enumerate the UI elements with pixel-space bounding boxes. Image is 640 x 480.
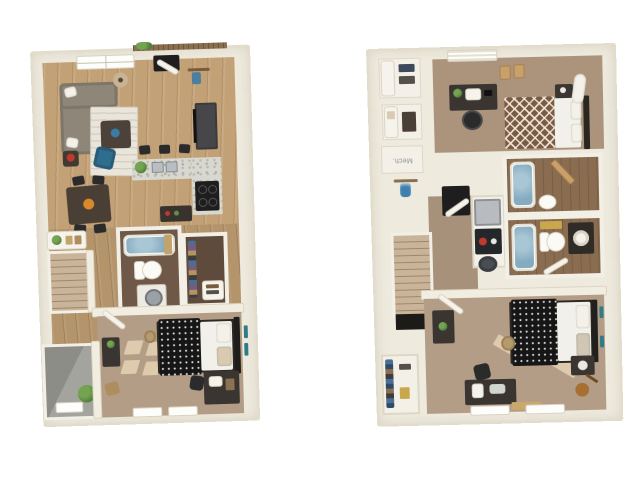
bedroom2-desk (449, 84, 498, 111)
hanging-clothes-icon (188, 241, 198, 298)
towel-icon (164, 235, 173, 255)
bedroom3-pillow (576, 305, 590, 329)
washer-unit (474, 199, 501, 226)
bedroom3-pillow (576, 333, 590, 357)
bedroom3-nightstand (571, 355, 595, 375)
bedroom2-window (448, 50, 496, 61)
hanging-clothes-icon (385, 359, 394, 408)
hall-shelf (47, 231, 85, 249)
living-window (77, 55, 133, 69)
stove (195, 181, 220, 211)
mech-room: Mech. (381, 145, 424, 174)
upper-closet (378, 58, 421, 99)
corkboard-icon (499, 65, 510, 79)
bedroom3-window (526, 405, 564, 414)
floorplan-image: { "image": { "type": "two-story apartmen… (0, 0, 640, 480)
bedroom-dresser (102, 337, 121, 367)
kitchen-sink-icon (152, 162, 164, 173)
second-floor-plan: Mech. (366, 43, 623, 427)
bath-mat-icon (540, 221, 562, 229)
bed-pillow (217, 346, 232, 366)
balcony-plant-icon (136, 42, 152, 50)
bedroom3-dresser (432, 310, 455, 344)
linen-closet (382, 104, 423, 141)
bathroom3-vanity (568, 222, 594, 254)
tv-console (195, 102, 218, 149)
kitchen-island (160, 205, 192, 222)
water-jug-icon (400, 183, 411, 197)
dryer-unit (475, 228, 502, 254)
bedroom2-pillow (571, 123, 582, 142)
bathroom3-tub (511, 224, 537, 272)
mech-room-label: Mech. (392, 156, 413, 163)
corkboard-icon (513, 64, 524, 78)
bed-duvet (158, 318, 201, 376)
bedroom3-headboard (591, 300, 598, 363)
dining-chair-icon (92, 175, 105, 185)
bedroom-window (134, 408, 162, 417)
wall-art-icon (600, 336, 604, 348)
dining-chair-icon (94, 223, 107, 233)
first-floor-plan (30, 45, 260, 428)
bedroom3-duvet (511, 299, 558, 366)
bedroom2-nightstand (555, 84, 573, 98)
bedroom3-closet (381, 354, 420, 415)
hanging-bag-icon (192, 72, 201, 84)
staircase (50, 253, 89, 311)
bedroom-window (169, 407, 197, 416)
bed-pillow (216, 323, 231, 343)
desk-chair-icon (189, 375, 205, 391)
sofa-pillow (66, 137, 79, 149)
bar-stool-icon (179, 144, 190, 154)
wall-art-icon (599, 306, 603, 318)
bar-stool-icon (139, 145, 151, 155)
bedroom-desk (203, 370, 239, 404)
bar-stool-icon (159, 145, 170, 154)
wall-art-icon (244, 325, 248, 338)
water-heater-icon (478, 256, 497, 272)
bathroom2-tub (510, 161, 536, 208)
closet-shelf (203, 281, 223, 299)
bedroom2-headboard (583, 95, 590, 149)
kitchen-sink-icon (165, 161, 177, 172)
bedroom3-window (471, 406, 509, 415)
bedroom3-desk (465, 379, 517, 406)
patio-doormat (56, 403, 82, 413)
bedroom2-duvet (504, 96, 555, 149)
wall-art-icon (244, 343, 248, 356)
wall-shelf-icon (394, 179, 418, 183)
